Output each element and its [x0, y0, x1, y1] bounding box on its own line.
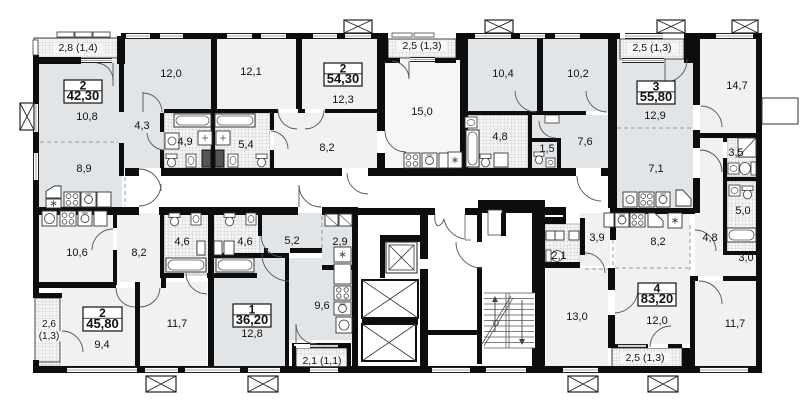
- svg-text:83,20: 83,20: [641, 291, 674, 306]
- svg-text:15,0: 15,0: [411, 106, 432, 118]
- svg-text:12,1: 12,1: [240, 66, 261, 78]
- svg-text:3,5: 3,5: [728, 147, 743, 159]
- svg-text:5,4: 5,4: [238, 139, 253, 151]
- svg-text:2,8 (1,4): 2,8 (1,4): [58, 42, 97, 54]
- svg-text:2,6: 2,6: [42, 319, 56, 330]
- svg-text:12,0: 12,0: [646, 315, 667, 327]
- svg-text:55,80: 55,80: [640, 89, 673, 104]
- svg-text:4,3: 4,3: [134, 120, 149, 132]
- svg-text:13,0: 13,0: [566, 311, 587, 323]
- svg-text:42,30: 42,30: [67, 88, 100, 103]
- svg-text:3,0: 3,0: [738, 252, 753, 264]
- svg-text:10,2: 10,2: [567, 68, 588, 80]
- svg-text:9,6: 9,6: [314, 300, 329, 312]
- svg-text:10,4: 10,4: [492, 68, 513, 80]
- svg-text:2,5 (1,3): 2,5 (1,3): [632, 42, 671, 54]
- svg-text:8,2: 8,2: [650, 236, 665, 248]
- svg-text:8,2: 8,2: [319, 142, 334, 154]
- svg-text:11,7: 11,7: [167, 318, 188, 330]
- svg-text:7,1: 7,1: [648, 163, 663, 175]
- svg-text:12,3: 12,3: [332, 94, 353, 106]
- svg-text:12,0: 12,0: [160, 68, 181, 80]
- svg-text:12,8: 12,8: [241, 328, 262, 340]
- svg-text:9,4: 9,4: [94, 339, 109, 351]
- svg-text:45,80: 45,80: [86, 316, 119, 331]
- svg-text:8,2: 8,2: [131, 247, 146, 259]
- svg-text:3,9: 3,9: [589, 232, 604, 244]
- svg-text:5,0: 5,0: [735, 205, 750, 217]
- svg-text:10,8: 10,8: [76, 111, 97, 123]
- svg-text:2,1: 2,1: [551, 250, 566, 262]
- svg-text:4,6: 4,6: [237, 236, 252, 248]
- svg-text:12,9: 12,9: [644, 110, 665, 122]
- svg-text:1,5: 1,5: [539, 143, 554, 155]
- svg-text:10,6: 10,6: [66, 247, 87, 259]
- svg-text:(1,3): (1,3): [39, 331, 60, 342]
- svg-text:54,30: 54,30: [327, 71, 360, 86]
- svg-text:2,1 (1,1): 2,1 (1,1): [302, 355, 341, 367]
- svg-text:11,7: 11,7: [725, 318, 746, 330]
- svg-text:7,6: 7,6: [577, 136, 592, 148]
- svg-text:5,2: 5,2: [284, 235, 299, 247]
- svg-text:4,6: 4,6: [174, 236, 189, 248]
- svg-text:2,9: 2,9: [332, 236, 347, 248]
- svg-text:2,5 (1,3): 2,5 (1,3): [402, 40, 441, 52]
- svg-text:8,9: 8,9: [76, 163, 91, 175]
- svg-text:2,5 (1,3): 2,5 (1,3): [625, 352, 664, 364]
- svg-text:4,8: 4,8: [492, 131, 507, 143]
- svg-text:36,20: 36,20: [236, 312, 269, 327]
- svg-text:4,9: 4,9: [177, 136, 192, 148]
- svg-text:4,8: 4,8: [702, 232, 717, 244]
- svg-text:14,7: 14,7: [726, 80, 747, 92]
